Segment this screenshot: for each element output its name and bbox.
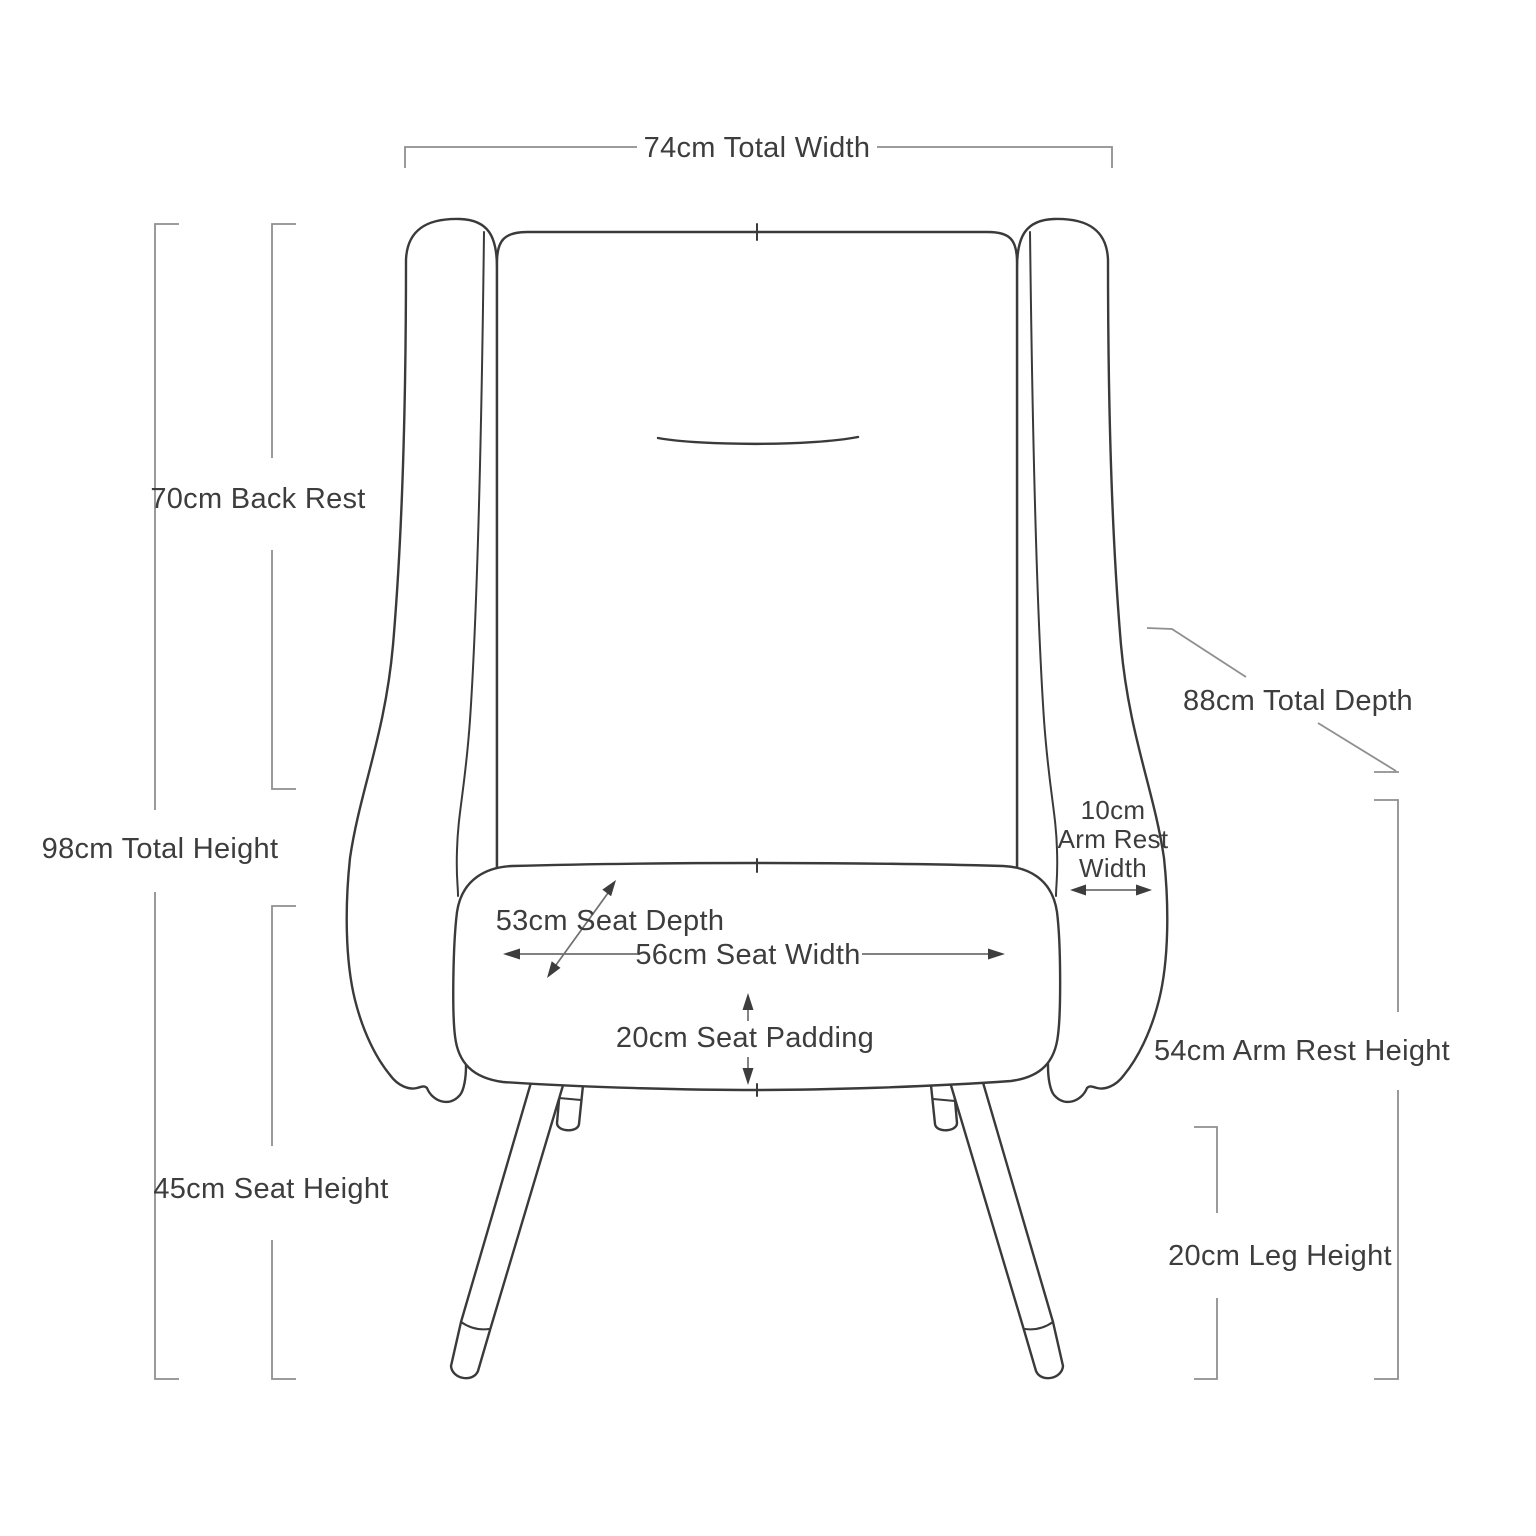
dim-arm-rest-height-line-top <box>1374 800 1398 1012</box>
dim-total-depth-label: 88cm Total Depth <box>1183 685 1413 717</box>
dim-seat-width-label: 56cm Seat Width <box>635 939 860 971</box>
chair-illustration <box>347 219 1168 1378</box>
dim-total-height-line-bottom <box>155 892 179 1379</box>
dim-seat-height-line-top <box>272 906 296 1146</box>
dim-seat-depth-label: 53cm Seat Depth <box>496 905 725 937</box>
dim-total-height: 98cm Total Height <box>42 224 279 1379</box>
dim-leg-height-label: 20cm Leg Height <box>1168 1240 1392 1272</box>
dim-leg-height-line-top <box>1194 1127 1217 1213</box>
dim-total-depth-diag-upper <box>1147 628 1246 677</box>
dim-back-rest-line-top <box>272 224 296 458</box>
front-leg-left-body <box>451 1062 570 1378</box>
chair-front-leg-left <box>451 1062 570 1378</box>
dim-back-rest: 70cm Back Rest <box>150 224 365 789</box>
dim-arm-rest-width-label-line2: Arm Rest <box>1058 824 1169 854</box>
dim-arm-rest-height-label: 54cm Arm Rest Height <box>1154 1035 1450 1067</box>
dim-back-rest-line-bottom <box>272 550 296 789</box>
chair-front-leg-right <box>944 1062 1063 1378</box>
dim-total-width-bracket-left <box>405 147 637 168</box>
chair-seat-cushion <box>453 863 1060 1090</box>
dim-total-height-line-top <box>155 224 179 810</box>
diagram-canvas: 74cm Total Width 98cm Total Height 70cm … <box>0 0 1536 1536</box>
dim-arm-rest-width-label-line1: 10cm <box>1081 795 1146 825</box>
dim-total-height-label: 98cm Total Height <box>42 833 279 865</box>
dim-total-depth-diag-lower <box>1318 723 1396 771</box>
front-leg-right-body <box>944 1062 1063 1378</box>
dim-back-rest-label: 70cm Back Rest <box>150 483 365 515</box>
dim-seat-height-line-bottom <box>272 1240 296 1379</box>
dim-arm-rest-width-label-line3: Width <box>1079 853 1147 883</box>
dim-total-width: 74cm Total Width <box>405 132 1112 168</box>
dim-arm-rest-height: 54cm Arm Rest Height <box>1154 800 1450 1379</box>
dim-seat-padding-label: 20cm Seat Padding <box>616 1022 874 1054</box>
chair-back-cushion <box>497 232 1017 880</box>
dim-total-depth: 88cm Total Depth <box>1147 628 1413 772</box>
dim-leg-height-line-bottom <box>1194 1298 1217 1379</box>
armchair-dimension-diagram: 74cm Total Width 98cm Total Height 70cm … <box>0 0 1536 1536</box>
dim-arm-rest-height-line-bottom <box>1374 1090 1398 1379</box>
dim-total-width-label: 74cm Total Width <box>644 132 871 164</box>
dim-total-width-bracket-right <box>877 147 1112 168</box>
dim-seat-height-label: 45cm Seat Height <box>153 1173 388 1205</box>
dim-leg-height: 20cm Leg Height <box>1168 1127 1392 1379</box>
